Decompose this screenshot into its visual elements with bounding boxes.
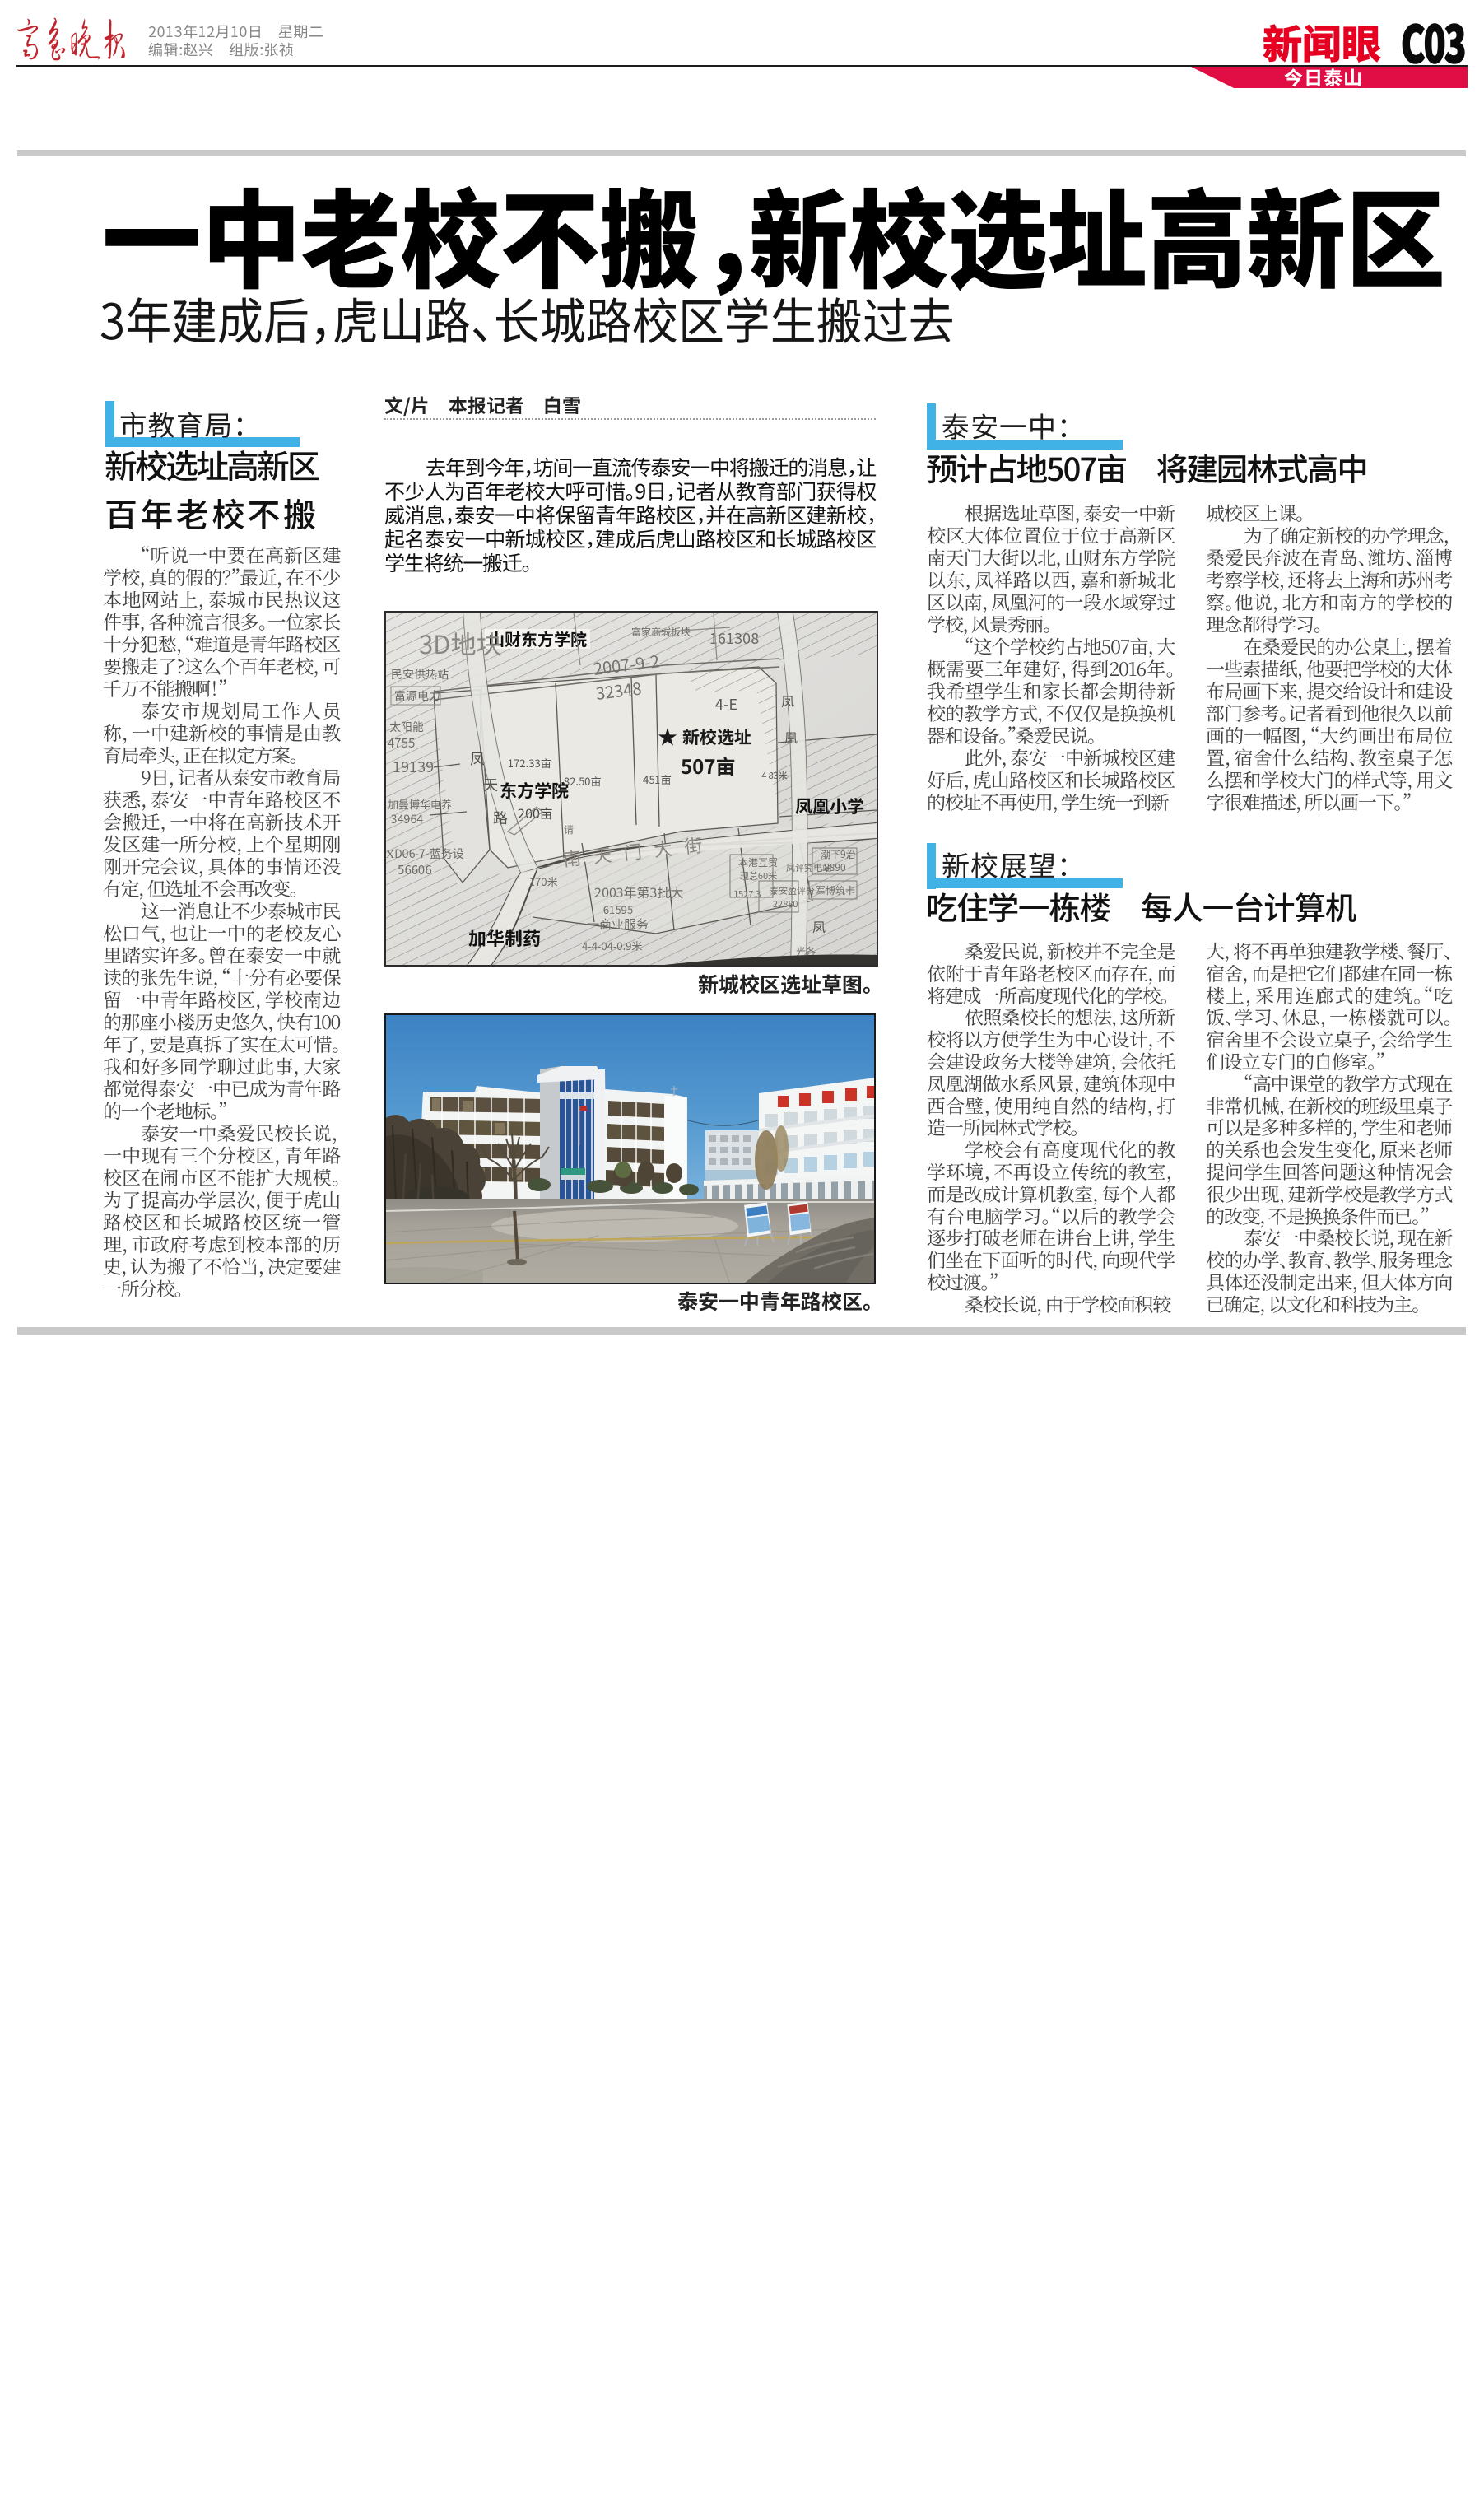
svg-text:507亩: 507亩 — [681, 751, 735, 780]
svg-text:凤凰小学: 凤凰小学 — [795, 794, 864, 818]
svg-text:路: 路 — [493, 807, 508, 828]
svg-text:加曼博华电养: 加曼博华电养 — [387, 796, 452, 812]
svg-text:加华制药: 加华制药 — [468, 925, 541, 951]
svg-text:1527.3: 1527.3 — [733, 887, 761, 901]
svg-text:请: 请 — [564, 822, 574, 836]
svg-text:凤: 凤 — [470, 748, 485, 769]
svg-text:161308: 161308 — [709, 627, 759, 649]
svg-text:170米: 170米 — [529, 873, 558, 889]
svg-text:军博筑卡: 军博筑卡 — [816, 883, 855, 897]
svg-text:民安供热站: 民安供热站 — [391, 666, 449, 682]
svg-text:4-E: 4-E — [715, 693, 737, 715]
svg-text:东方学院: 东方学院 — [500, 778, 570, 803]
svg-text:XD06-7-蓝务设: XD06-7-蓝务设 — [386, 846, 464, 862]
svg-text:82.50亩: 82.50亩 — [564, 773, 601, 789]
svg-text:本港互贸: 本港互贸 — [738, 855, 778, 869]
svg-text:新校选址: 新校选址 — [682, 724, 751, 749]
svg-text:潮下9治: 潮下9治 — [821, 847, 856, 861]
svg-text:天: 天 — [483, 774, 498, 795]
svg-text:凤: 凤 — [781, 691, 794, 710]
svg-text:200亩: 200亩 — [518, 803, 553, 822]
svg-text:太阳能: 太阳能 — [389, 719, 424, 735]
svg-text:山财东方学院: 山财东方学院 — [488, 627, 587, 650]
svg-text:56606: 56606 — [397, 861, 432, 878]
svg-text:富源电力: 富源电力 — [394, 687, 440, 704]
svg-text:凰: 凰 — [784, 727, 798, 747]
svg-text:★: ★ — [658, 721, 677, 750]
svg-text:451亩: 451亩 — [643, 771, 672, 787]
svg-text:3D地块: 3D地块 — [419, 624, 502, 661]
svg-text:172.33亩: 172.33亩 — [508, 755, 551, 771]
svg-text:22880: 22880 — [773, 897, 798, 911]
svg-text:2003年第3批大: 2003年第3批大 — [594, 882, 683, 901]
svg-text:一商业服务: 一商业服务 — [587, 915, 649, 933]
svg-text:4 83米: 4 83米 — [761, 769, 788, 782]
svg-text:34964: 34964 — [391, 811, 423, 827]
svg-text:凤: 凤 — [812, 916, 826, 936]
svg-text:19139: 19139 — [393, 756, 434, 777]
svg-text:4755: 4755 — [388, 734, 415, 752]
svg-text:泰安盈评分: 泰安盈评分 — [770, 884, 815, 897]
svg-text:4-4-04-0.9米: 4-4-04-0.9米 — [582, 938, 642, 953]
svg-text:8890: 8890 — [824, 860, 846, 874]
